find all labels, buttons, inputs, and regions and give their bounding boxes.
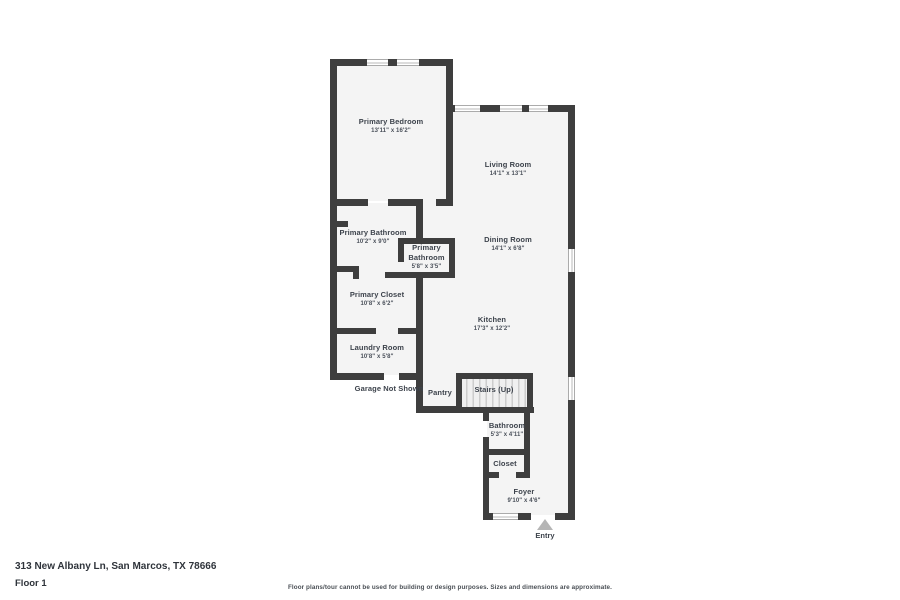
room-name: Stairs (Up) bbox=[458, 385, 530, 395]
room-name: Closet bbox=[483, 459, 527, 469]
wall bbox=[456, 373, 532, 379]
room-name: Dining Room bbox=[448, 235, 568, 245]
room-dims: 10'8" x 6'2" bbox=[322, 300, 432, 308]
wall bbox=[568, 105, 575, 520]
window bbox=[455, 105, 480, 112]
room-dims: 14'1" x 13'1" bbox=[448, 170, 568, 178]
wall bbox=[483, 472, 499, 478]
wall bbox=[330, 199, 368, 206]
room-name: Bathroom bbox=[477, 421, 537, 431]
entry-label: Entry bbox=[515, 531, 575, 540]
wall bbox=[398, 328, 423, 334]
wall bbox=[518, 513, 531, 520]
room-name: Primary Bathroom bbox=[403, 243, 450, 263]
wall bbox=[456, 407, 534, 413]
window bbox=[397, 59, 419, 66]
room-label-pantry: Pantry bbox=[419, 388, 461, 398]
room-name: Foyer bbox=[483, 487, 565, 497]
wall bbox=[330, 221, 348, 227]
floor-plan: Primary Bedroom 13'11" x 16'2" Living Ro… bbox=[0, 0, 900, 600]
room-label-bathroom: Bathroom 5'3" x 4'11" bbox=[477, 421, 537, 439]
room-label-closet: Closet bbox=[483, 459, 527, 469]
window bbox=[500, 105, 522, 112]
room-name: Primary Bedroom bbox=[331, 117, 451, 127]
room-dims: 14'1" x 6'8" bbox=[448, 245, 568, 253]
wall bbox=[483, 449, 530, 455]
window bbox=[568, 377, 575, 400]
room-label-primary-closet: Primary Closet 10'8" x 6'2" bbox=[322, 290, 432, 308]
wall bbox=[330, 328, 376, 334]
room-name: Laundry Room bbox=[322, 343, 432, 353]
window bbox=[568, 249, 575, 272]
wall bbox=[555, 513, 575, 520]
wall bbox=[330, 373, 384, 380]
room-label-foyer: Foyer 9'10" x 4'6" bbox=[483, 487, 565, 505]
room-label-laundry-room: Laundry Room 10'8" x 5'8" bbox=[322, 343, 432, 361]
wall bbox=[483, 407, 489, 421]
room-name: Primary Bathroom bbox=[322, 228, 424, 238]
address-text: 313 New Albany Ln, San Marcos, TX 78666 bbox=[15, 561, 216, 572]
entry-arrow-icon bbox=[537, 519, 553, 530]
wall bbox=[353, 266, 359, 279]
wall bbox=[436, 199, 453, 206]
room-label-living-room: Living Room 14'1" x 13'1" bbox=[448, 160, 568, 178]
window bbox=[493, 513, 518, 520]
room-name: Pantry bbox=[419, 388, 461, 398]
room-label-kitchen: Kitchen 17'3" x 12'2" bbox=[432, 315, 552, 333]
wall bbox=[399, 373, 423, 380]
room-name: Primary Closet bbox=[322, 290, 432, 300]
room-dims: 5'8" x 3'5" bbox=[403, 263, 450, 271]
room-dims: 9'10" x 4'6" bbox=[483, 497, 565, 505]
disclaimer-text: Floor plans/tour cannot be used for buil… bbox=[0, 584, 900, 591]
room-label-primary-bathroom-2: Primary Bathroom 5'8" x 3'5" bbox=[403, 243, 450, 271]
wall bbox=[398, 272, 455, 278]
room-label-dining-room: Dining Room 14'1" x 6'8" bbox=[448, 235, 568, 253]
room-dims: 5'3" x 4'11" bbox=[477, 431, 537, 439]
room-name: Kitchen bbox=[432, 315, 552, 325]
wall bbox=[330, 59, 453, 66]
room-label-stairs-up: Stairs (Up) bbox=[458, 385, 530, 395]
room-label-primary-bedroom: Primary Bedroom 13'11" x 16'2" bbox=[331, 117, 451, 135]
room-dims: 17'3" x 12'2" bbox=[432, 325, 552, 333]
room-dims: 10'8" x 5'8" bbox=[322, 353, 432, 361]
wall bbox=[516, 472, 530, 478]
room-name: Living Room bbox=[448, 160, 568, 170]
window bbox=[367, 59, 388, 66]
window bbox=[529, 105, 548, 112]
room-dims: 13'11" x 16'2" bbox=[331, 127, 451, 135]
